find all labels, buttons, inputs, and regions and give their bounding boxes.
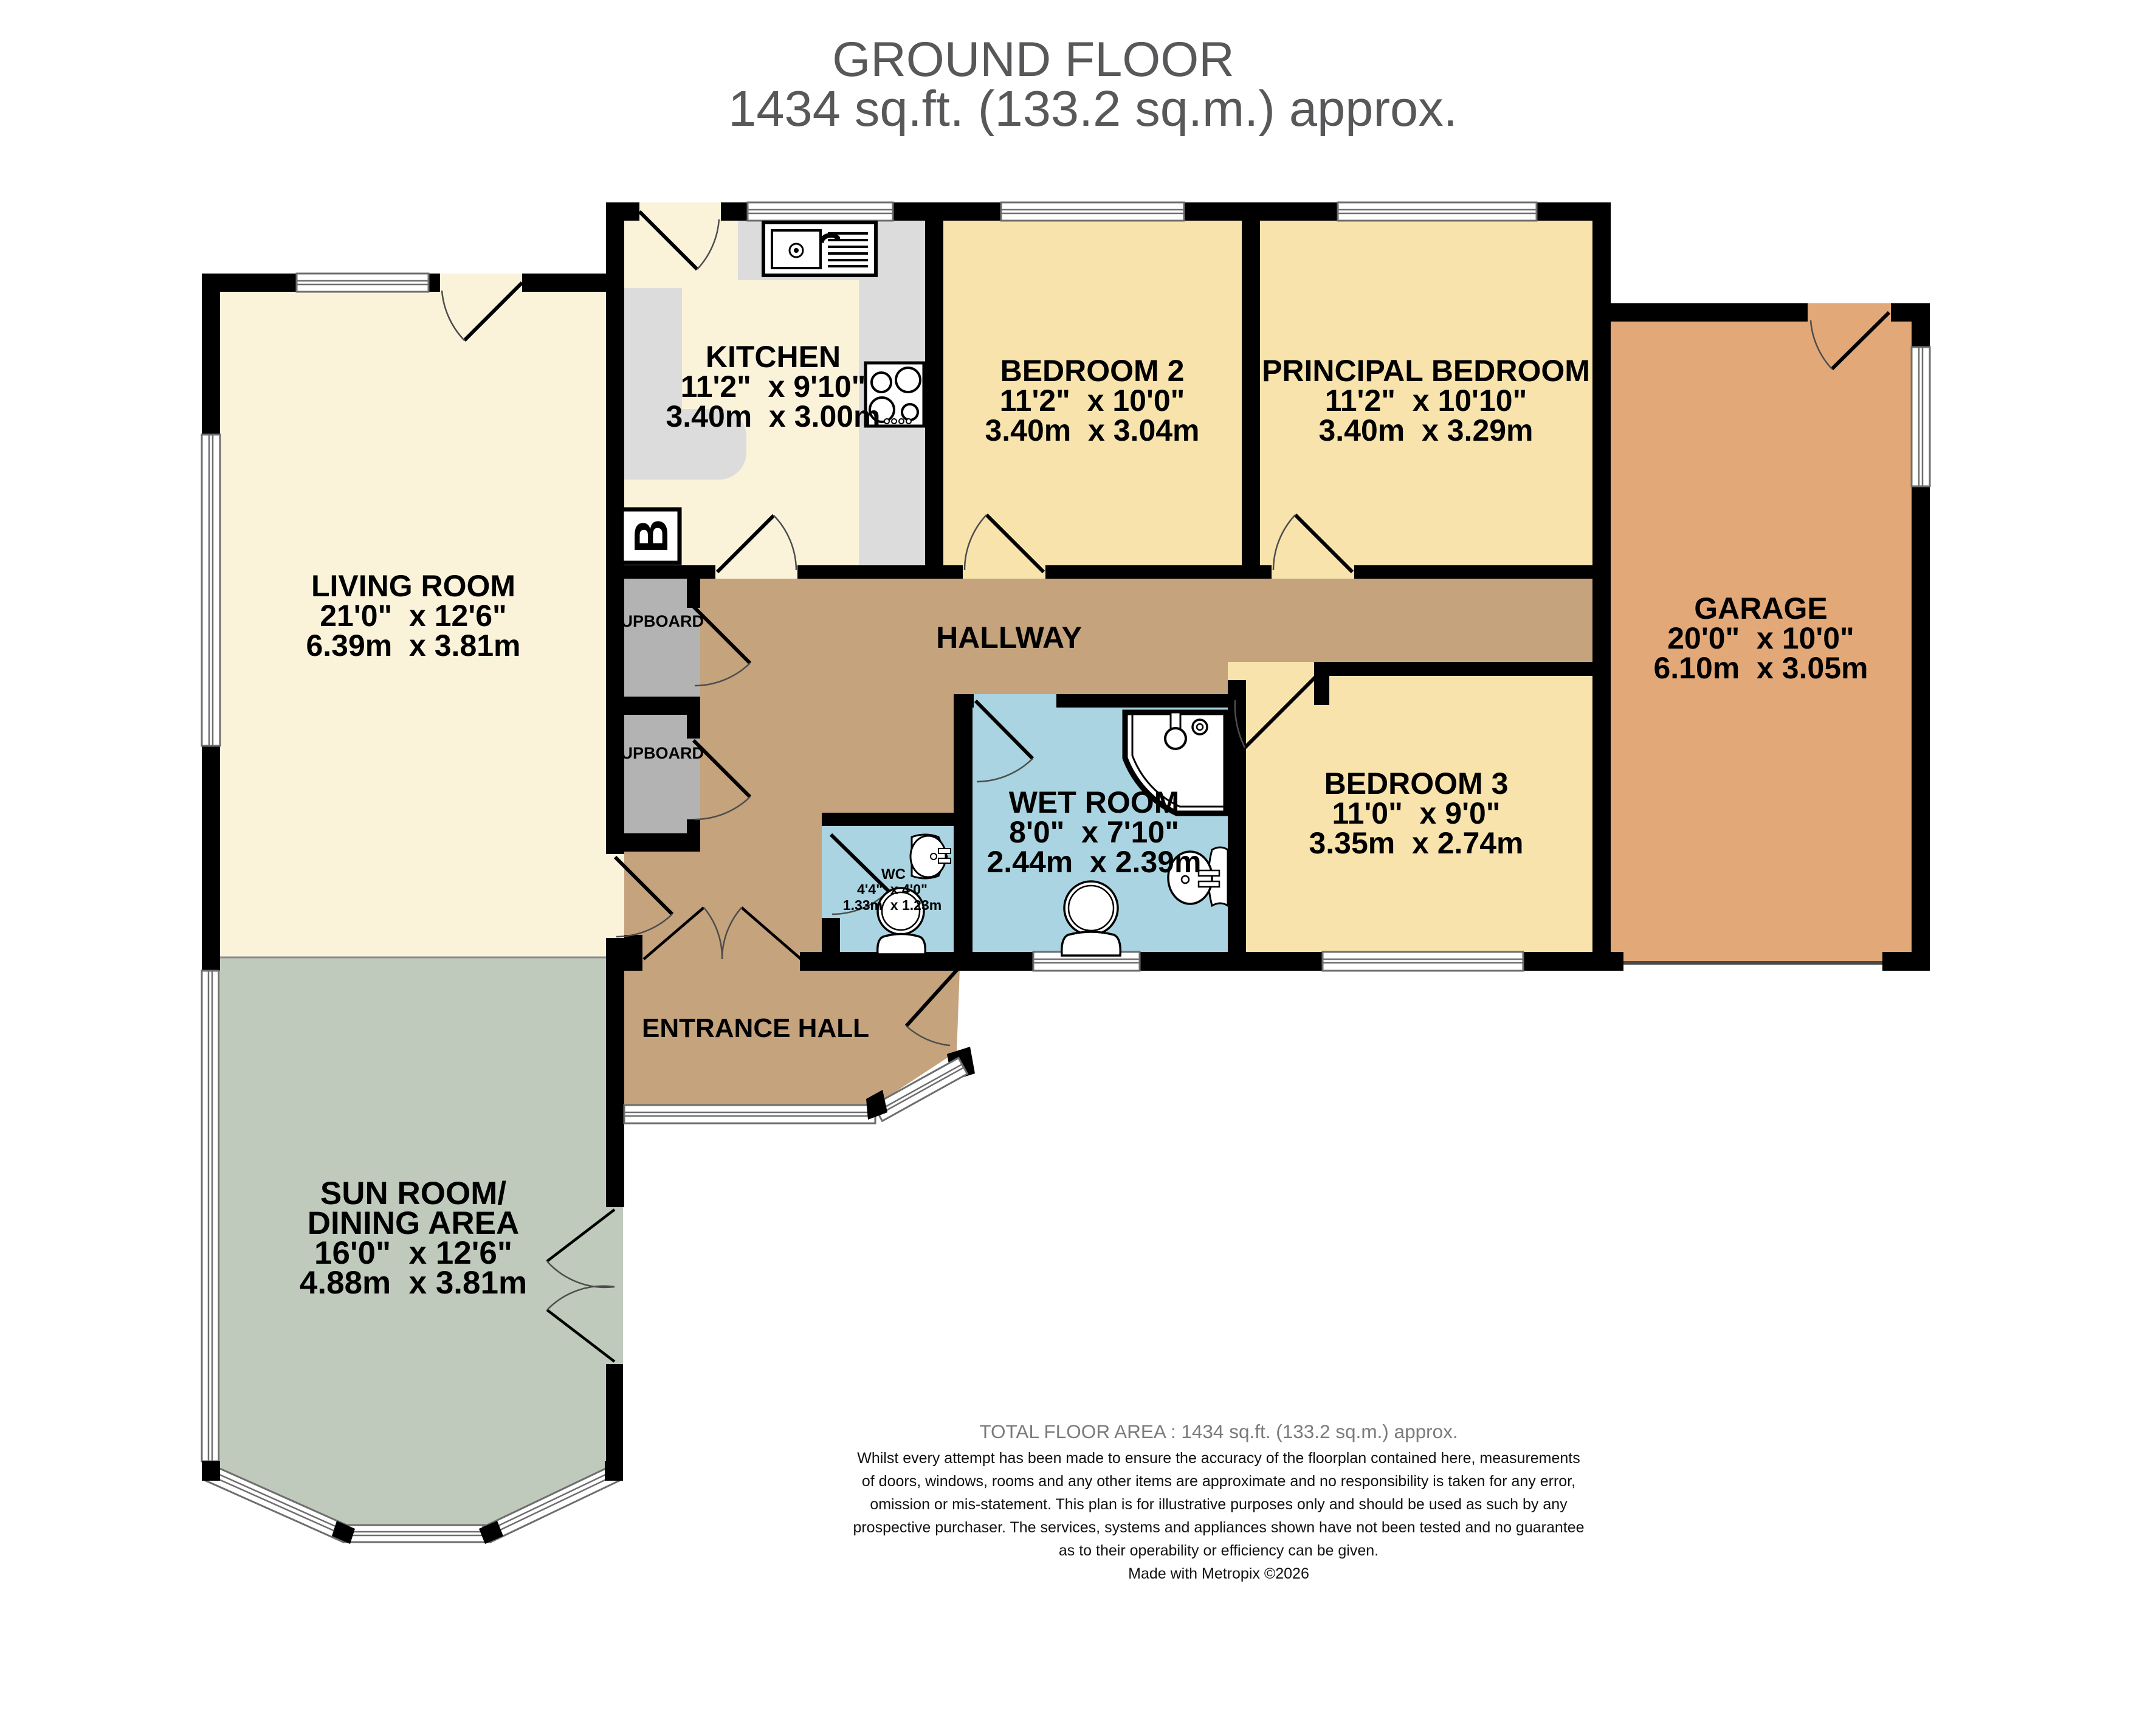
svg-text:2.44m x 2.39m: 2.44m x 2.39m bbox=[986, 845, 1201, 879]
svg-text:Made with Metropix ©2026: Made with Metropix ©2026 bbox=[1128, 1565, 1309, 1582]
svg-text:8'0" x 7'10": 8'0" x 7'10" bbox=[1009, 815, 1179, 849]
svg-text:WET ROOM: WET ROOM bbox=[1009, 785, 1180, 819]
svg-text:11'0" x 9'0": 11'0" x 9'0" bbox=[1332, 796, 1501, 830]
svg-text:1.33m x 1.23m: 1.33m x 1.23m bbox=[843, 897, 942, 913]
svg-text:11'2" x 9'10": 11'2" x 9'10" bbox=[681, 370, 866, 404]
svg-text:3.40m x 3.04m: 3.40m x 3.04m bbox=[985, 413, 1199, 447]
svg-text:prospective purchaser. The ser: prospective purchaser. The services, sys… bbox=[853, 1519, 1584, 1536]
svg-text:omission or mis-statement. Thi: omission or mis-statement. This plan is … bbox=[870, 1496, 1568, 1513]
svg-text:6.39m x 3.81m: 6.39m x 3.81m bbox=[306, 629, 520, 663]
svg-text:21'0" x 12'6": 21'0" x 12'6" bbox=[320, 599, 507, 633]
svg-text:as to their operability or eff: as to their operability or efficiency ca… bbox=[1059, 1542, 1379, 1559]
svg-text:B: B bbox=[624, 519, 678, 553]
svg-text:CUPBOARD: CUPBOARD bbox=[609, 612, 704, 630]
svg-text:BEDROOM 3: BEDROOM 3 bbox=[1324, 766, 1509, 801]
svg-text:3.40m x 3.29m: 3.40m x 3.29m bbox=[1318, 413, 1533, 447]
svg-text:Whilst every attempt has been: Whilst every attempt has been made to en… bbox=[857, 1450, 1580, 1467]
svg-text:3.35m x 2.74m: 3.35m x 2.74m bbox=[1309, 826, 1523, 860]
svg-text:3.40m x 3.00m: 3.40m x 3.00m bbox=[666, 399, 880, 433]
svg-text:GROUND FLOOR: GROUND FLOOR bbox=[832, 32, 1234, 87]
svg-text:CUPBOARD: CUPBOARD bbox=[609, 744, 704, 762]
svg-text:20'0" x 10'0": 20'0" x 10'0" bbox=[1667, 621, 1854, 655]
svg-text:4.88m x 3.81m: 4.88m x 3.81m bbox=[300, 1265, 527, 1301]
svg-text:TOTAL FLOOR AREA : 1434 sq.ft.: TOTAL FLOOR AREA : 1434 sq.ft. (133.2 sq… bbox=[979, 1421, 1458, 1442]
svg-text:HALLWAY: HALLWAY bbox=[936, 621, 1082, 655]
svg-text:of doors, windows, rooms and a: of doors, windows, rooms and any other i… bbox=[862, 1473, 1575, 1490]
svg-text:KITCHEN: KITCHEN bbox=[706, 340, 841, 374]
svg-text:LIVING ROOM: LIVING ROOM bbox=[311, 569, 515, 603]
svg-text:ENTRANCE HALL: ENTRANCE HALL bbox=[642, 1013, 869, 1043]
svg-text:6.10m x 3.05m: 6.10m x 3.05m bbox=[1653, 651, 1868, 685]
svg-text:1434 sq.ft. (133.2 sq.m.) appr: 1434 sq.ft. (133.2 sq.m.) approx. bbox=[728, 80, 1458, 137]
svg-text:PRINCIPAL BEDROOM: PRINCIPAL BEDROOM bbox=[1262, 354, 1590, 388]
svg-text:11'2" x 10'0": 11'2" x 10'0" bbox=[1000, 384, 1185, 418]
svg-text:BEDROOM 2: BEDROOM 2 bbox=[1000, 354, 1185, 388]
svg-text:11'2" x 10'10": 11'2" x 10'10" bbox=[1325, 384, 1527, 418]
svg-text:WC: WC bbox=[881, 866, 906, 883]
svg-text:4'4" x 4'0": 4'4" x 4'0" bbox=[857, 881, 928, 897]
svg-text:GARAGE: GARAGE bbox=[1694, 591, 1827, 625]
